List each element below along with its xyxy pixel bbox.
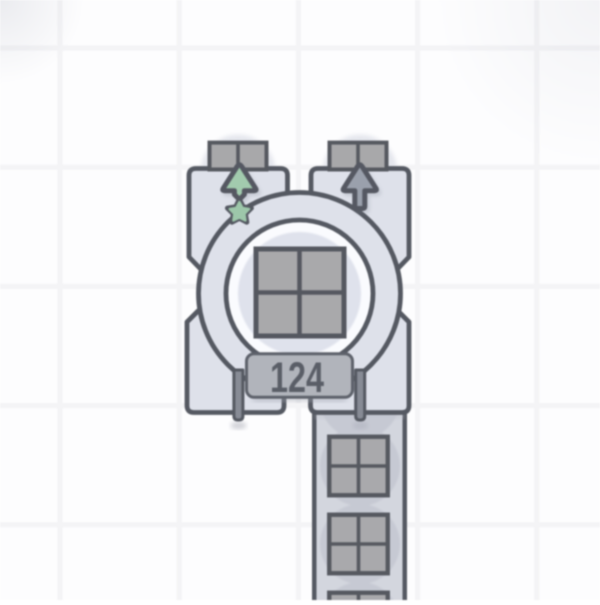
svg-text:124: 124 xyxy=(270,354,324,402)
